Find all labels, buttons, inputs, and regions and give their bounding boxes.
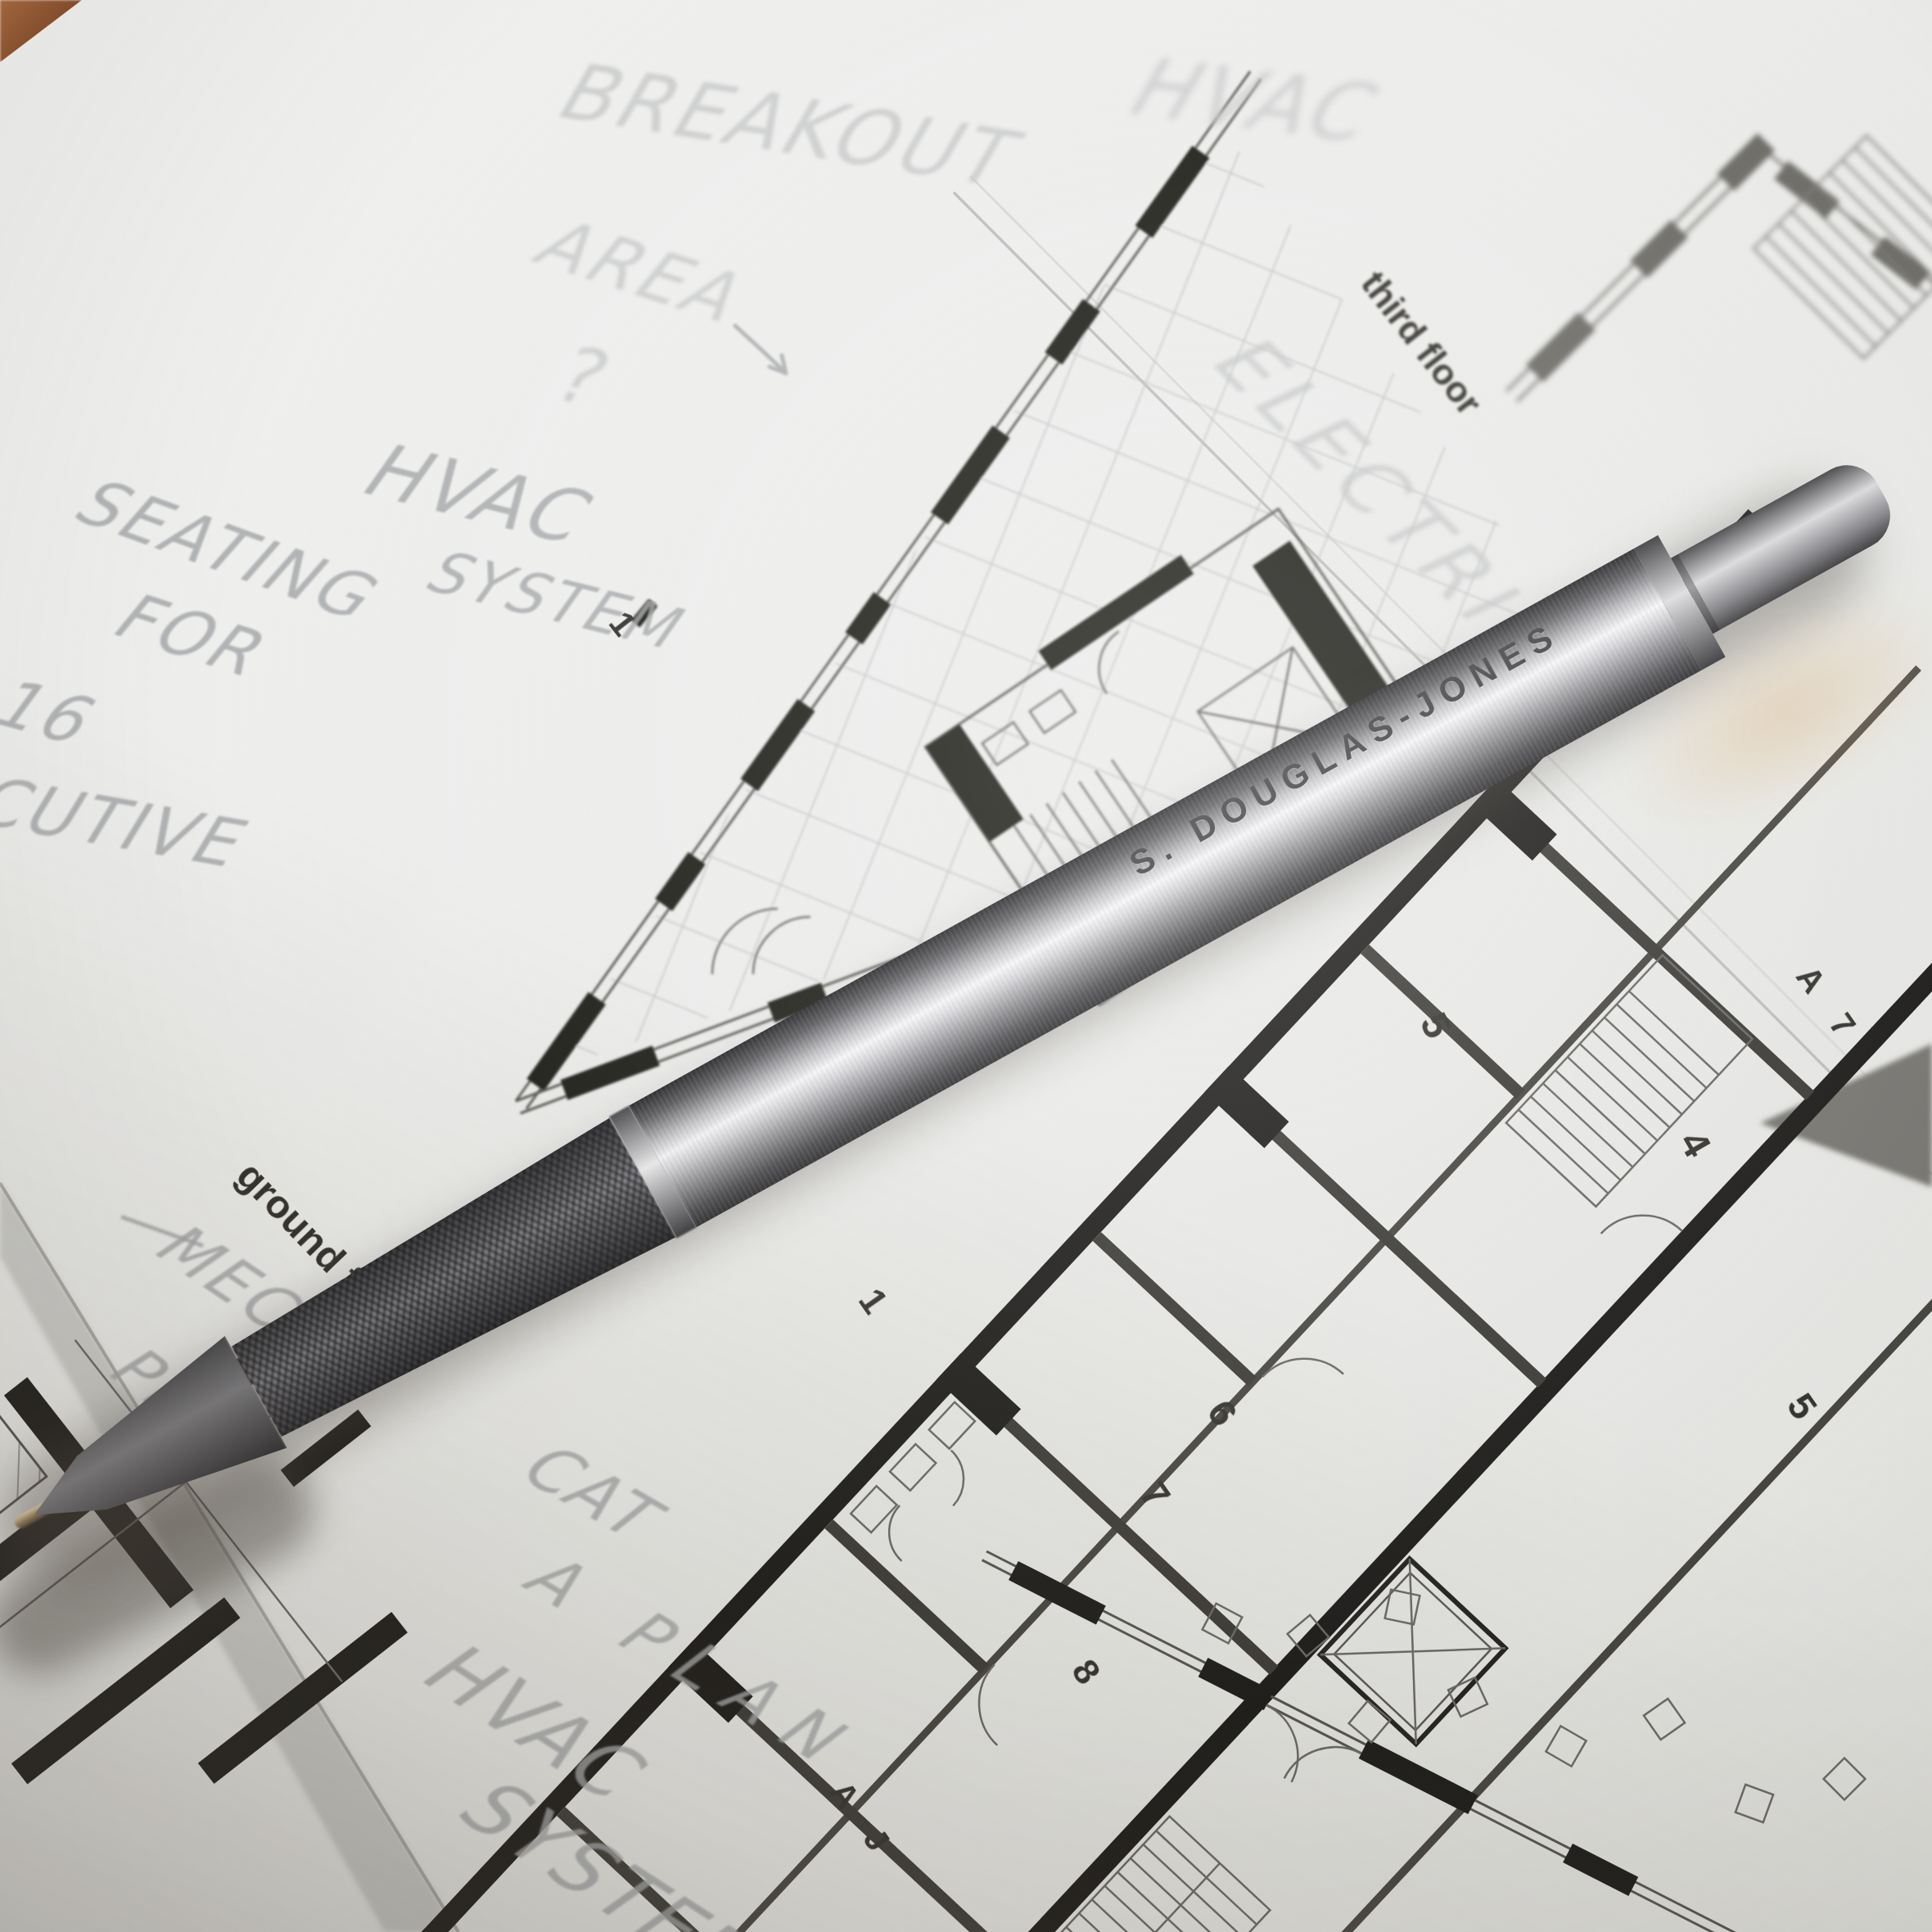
plan-top-right	[1503, 133, 1932, 405]
photo-scene: BREAKOUT AREA ? HVAC HVAC SYSTEM SEATING…	[0, 0, 1932, 1932]
furniture-chairs	[1203, 1590, 1866, 1822]
